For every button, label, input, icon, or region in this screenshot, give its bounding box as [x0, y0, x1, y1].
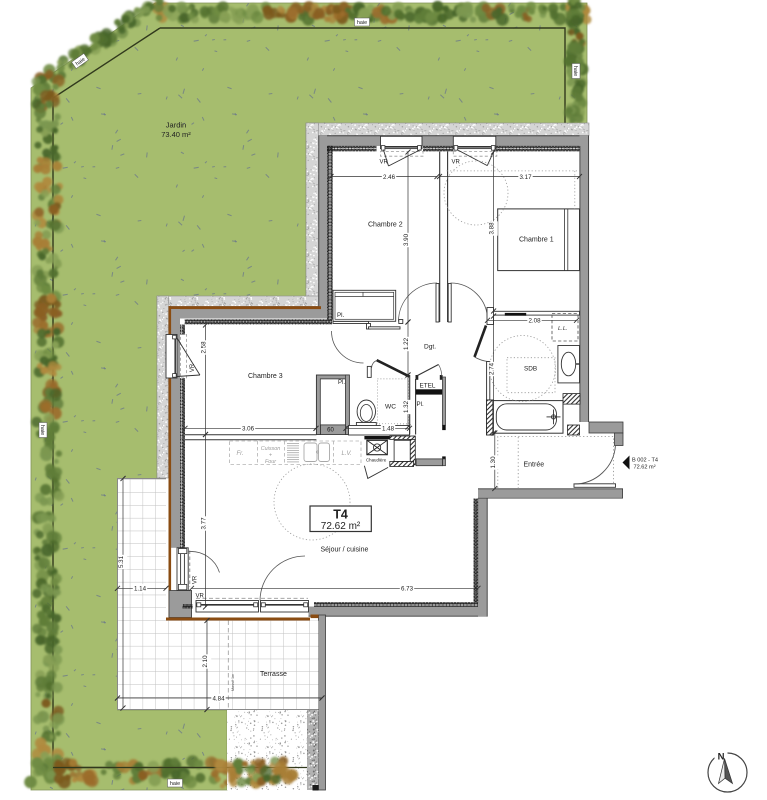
svg-text:2.58: 2.58	[201, 341, 208, 354]
svg-text:haie: haie	[170, 781, 180, 787]
svg-text:3.88: 3.88	[489, 222, 496, 235]
svg-text:Terrasse: Terrasse	[260, 671, 287, 678]
svg-text:+: +	[269, 453, 272, 459]
svg-text:haie: haie	[572, 66, 578, 76]
svg-text:haie: haie	[39, 425, 45, 435]
svg-text:VR: VR	[452, 160, 461, 166]
svg-text:Massif 1m: Massif 1m	[231, 674, 235, 691]
svg-text:Four: Four	[265, 459, 276, 465]
svg-text:WC: WC	[385, 404, 396, 411]
svg-text:VR: VR	[190, 363, 196, 372]
svg-text:N: N	[718, 752, 725, 763]
svg-text:3.90: 3.90	[403, 233, 410, 246]
svg-text:72.62 m²: 72.62 m²	[321, 521, 361, 532]
svg-text:2.08: 2.08	[528, 318, 541, 325]
svg-text:1.30: 1.30	[490, 456, 497, 469]
svg-text:1.22: 1.22	[403, 337, 410, 350]
svg-text:6.73: 6.73	[401, 586, 414, 593]
svg-text:L.V.: L.V.	[342, 451, 352, 457]
svg-text:Fr.: Fr.	[237, 451, 244, 457]
svg-text:Chambre 2: Chambre 2	[368, 222, 403, 229]
svg-text:Chambre 3: Chambre 3	[248, 373, 283, 380]
svg-text:60: 60	[327, 428, 334, 434]
svg-text:T4: T4	[333, 508, 348, 522]
svg-text:4.84: 4.84	[212, 695, 225, 702]
svg-text:1.32: 1.32	[403, 400, 410, 413]
svg-text:B 002 - T4: B 002 - T4	[632, 458, 658, 464]
svg-text:Chaudière: Chaudière	[366, 458, 387, 463]
svg-text:73.40 m²: 73.40 m²	[161, 130, 191, 139]
svg-text:Dgt.: Dgt.	[424, 344, 436, 351]
svg-text:1.48: 1.48	[382, 426, 395, 433]
svg-text:Pl.: Pl.	[338, 380, 345, 386]
svg-text:2.74: 2.74	[489, 362, 496, 375]
svg-text:1.14: 1.14	[134, 586, 147, 593]
svg-text:L.L.: L.L.	[558, 326, 568, 332]
svg-text:3.77: 3.77	[201, 517, 208, 530]
svg-text:Pl.: Pl.	[417, 401, 425, 408]
svg-text:Pl.: Pl.	[337, 312, 345, 319]
svg-text:SDB: SDB	[524, 366, 537, 373]
svg-text:ETEL: ETEL	[420, 383, 436, 390]
svg-text:3.17: 3.17	[519, 174, 532, 181]
svg-text:5.31: 5.31	[118, 555, 125, 568]
svg-text:3.06: 3.06	[242, 426, 255, 433]
svg-text:Jardin: Jardin	[166, 121, 186, 130]
svg-text:Séjour / cuisine: Séjour / cuisine	[321, 547, 369, 554]
svg-text:Chambre 1: Chambre 1	[519, 237, 554, 244]
svg-text:2.10: 2.10	[202, 655, 209, 668]
svg-text:2.46: 2.46	[383, 174, 396, 181]
svg-text:72.62 m²: 72.62 m²	[634, 465, 656, 471]
svg-text:Cuisson: Cuisson	[261, 446, 280, 452]
svg-text:haie: haie	[357, 20, 367, 26]
svg-text:Entrée: Entrée	[524, 462, 545, 469]
svg-text:VR: VR	[193, 575, 199, 584]
